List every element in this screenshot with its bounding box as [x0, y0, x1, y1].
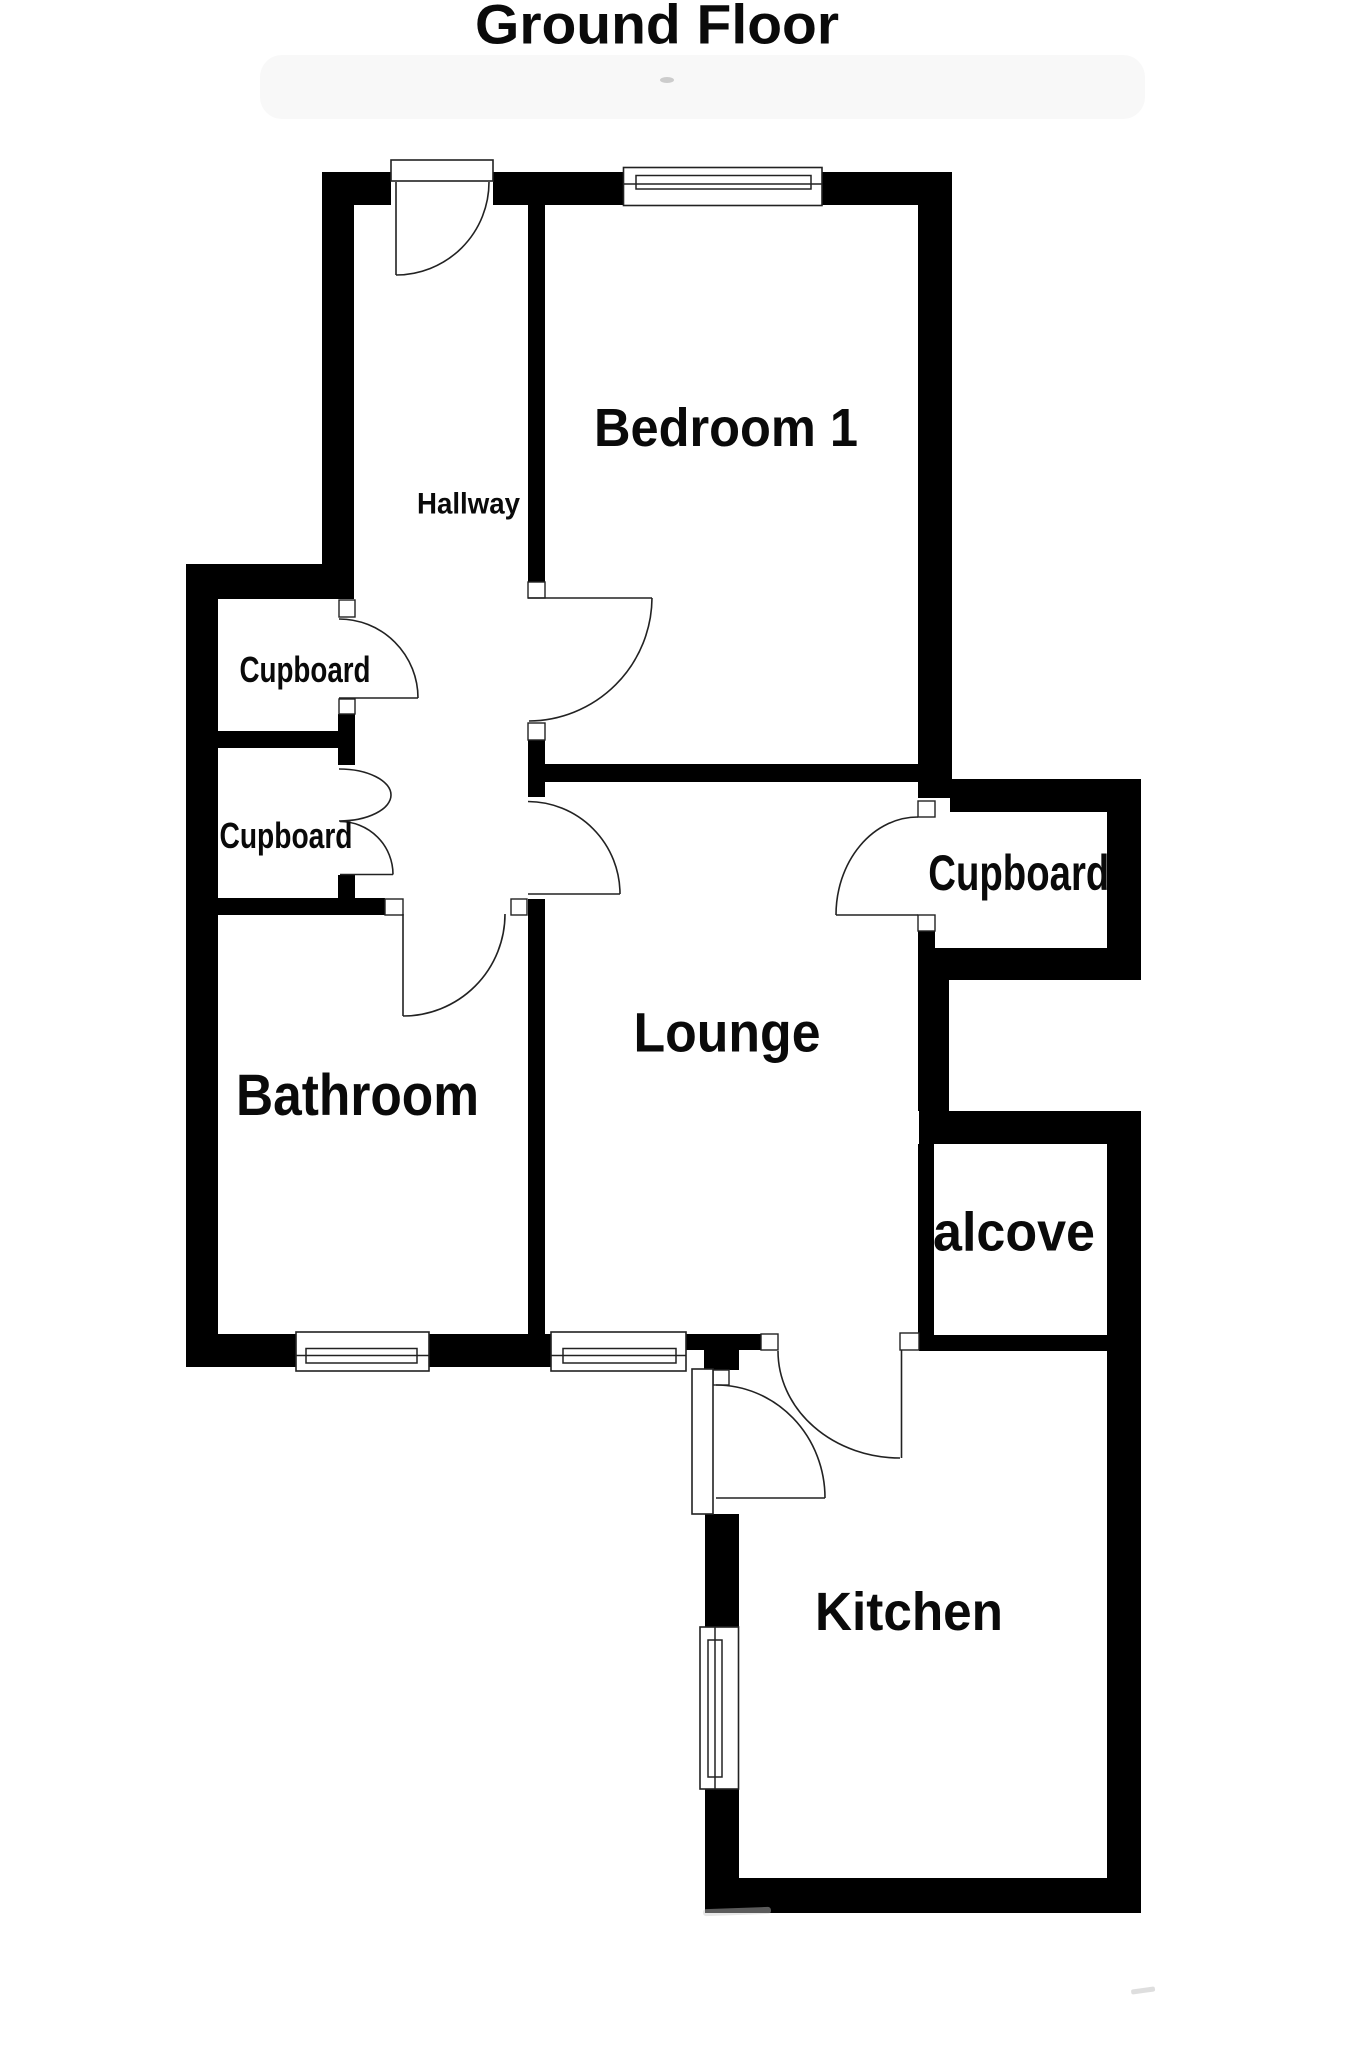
svg-text:Bedroom 1: Bedroom 1	[594, 398, 858, 458]
svg-text:Ground Floor: Ground Floor	[475, 0, 839, 56]
svg-text:alcove: alcove	[933, 1200, 1095, 1262]
svg-text:Kitchen: Kitchen	[815, 1582, 1003, 1642]
svg-text:Lounge: Lounge	[634, 1001, 821, 1064]
svg-text:Cupboard: Cupboard	[928, 845, 1109, 901]
svg-text:Cupboard: Cupboard	[220, 815, 353, 856]
svg-text:Hallway: Hallway	[417, 488, 520, 521]
svg-text:Bathroom: Bathroom	[236, 1063, 479, 1128]
svg-text:Cupboard: Cupboard	[240, 649, 371, 690]
